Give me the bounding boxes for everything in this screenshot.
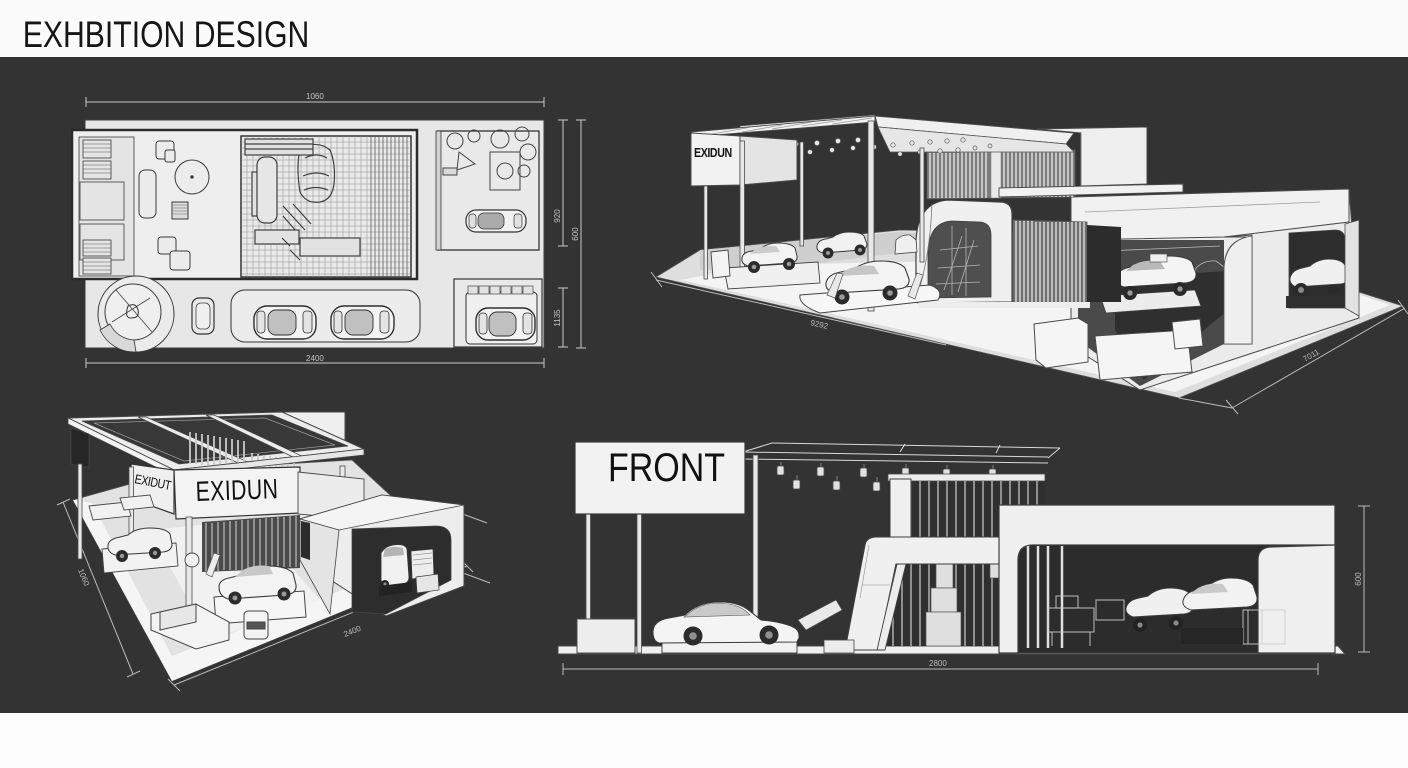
svg-text:2800: 2800 — [929, 659, 947, 668]
svg-text:600: 600 — [1354, 572, 1363, 586]
svg-text:920: 920 — [553, 209, 562, 223]
svg-text:EXHBITION DESIGN: EXHBITION DESIGN — [23, 14, 310, 56]
svg-text:1060: 1060 — [306, 92, 324, 101]
svg-text:EXIDUN: EXIDUN — [195, 473, 279, 507]
svg-text:FRONT: FRONT — [608, 444, 725, 489]
svg-text:2400: 2400 — [306, 354, 324, 363]
svg-text:600: 600 — [571, 227, 580, 241]
svg-text:EXIDUN: EXIDUN — [694, 145, 732, 160]
svg-text:1135: 1135 — [553, 309, 562, 327]
